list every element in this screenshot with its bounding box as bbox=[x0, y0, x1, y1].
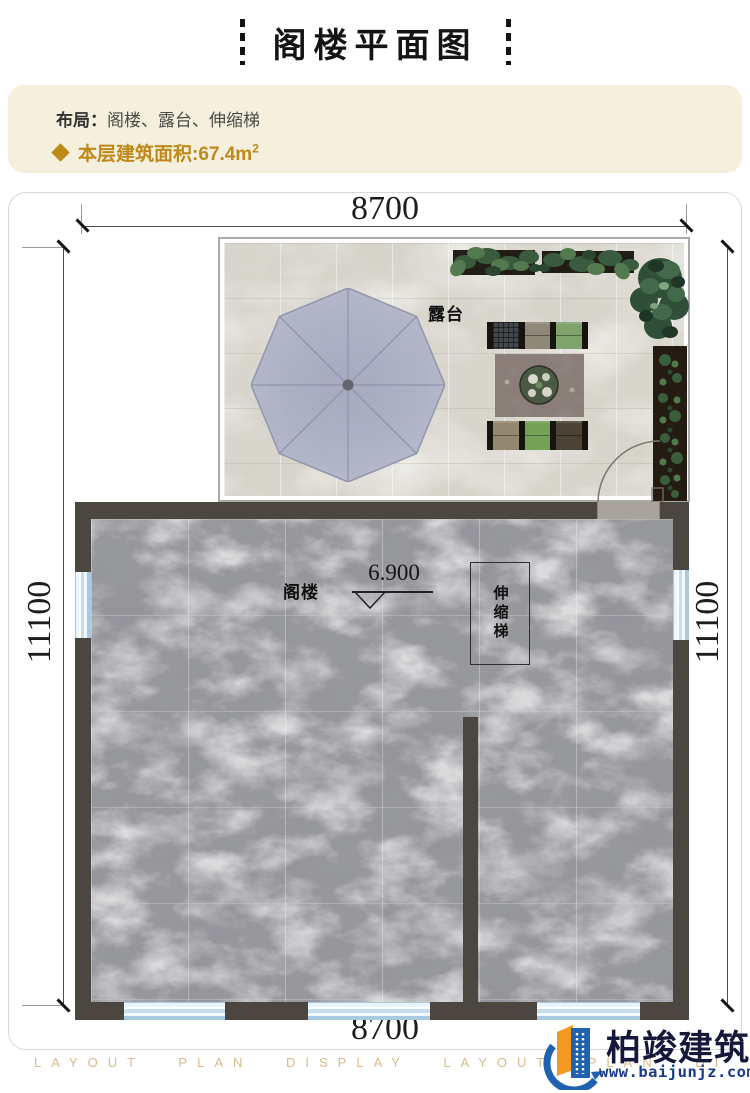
window bbox=[673, 570, 689, 640]
ladder-label: 伸缩梯 bbox=[490, 585, 511, 642]
extension-line bbox=[22, 247, 64, 248]
brand-logo-icon bbox=[543, 1016, 605, 1090]
window bbox=[75, 572, 91, 638]
level-value: 6.900 bbox=[352, 560, 436, 586]
tree-icon bbox=[626, 250, 692, 348]
cushion bbox=[556, 322, 582, 349]
bench-bottom bbox=[487, 421, 588, 450]
umbrella-icon bbox=[251, 288, 445, 482]
layout-line: 布局：阁楼、露台、伸缩梯 bbox=[56, 106, 260, 131]
layout-label: 布局： bbox=[56, 111, 107, 130]
table-rug bbox=[495, 354, 584, 417]
cushion bbox=[556, 421, 582, 450]
dimension-line-top bbox=[82, 226, 686, 227]
cushion bbox=[493, 421, 519, 450]
brand-website: www.baijunjz.com bbox=[599, 1063, 750, 1081]
round-table-icon bbox=[495, 354, 584, 417]
page-title: 阁楼平面图 bbox=[273, 18, 478, 67]
extension-line bbox=[81, 204, 82, 234]
plants-icon bbox=[443, 238, 547, 290]
telescopic-ladder-box: 伸缩梯 bbox=[470, 562, 530, 665]
extension-line bbox=[686, 204, 687, 234]
dimension-top: 8700 bbox=[330, 190, 440, 228]
terrace-label: 露台 bbox=[428, 300, 464, 325]
level-marker-icon bbox=[353, 591, 389, 611]
page-header: 阁楼平面图 bbox=[0, 14, 750, 70]
cushion bbox=[525, 322, 551, 349]
cushion bbox=[493, 322, 519, 349]
attic-label: 阁楼 bbox=[283, 578, 319, 603]
extension-line bbox=[22, 1005, 64, 1006]
info-box: 布局：阁楼、露台、伸缩梯 本层建筑面积:67.4m2 bbox=[8, 85, 742, 173]
area-text: 本层建筑面积:67.4m2 bbox=[78, 139, 259, 166]
door-threshold bbox=[597, 502, 660, 519]
title-dash-right-icon bbox=[506, 19, 511, 65]
dimension-line-left bbox=[63, 247, 64, 1006]
cushion bbox=[525, 421, 551, 450]
dimension-left: 11100 bbox=[21, 562, 59, 682]
layout-value: 阁楼、露台、伸缩梯 bbox=[107, 111, 260, 130]
diamond-bullet-icon bbox=[51, 143, 69, 161]
area-line: 本层建筑面积:67.4m2 bbox=[54, 139, 259, 166]
window bbox=[124, 1002, 225, 1020]
interior-wall bbox=[463, 717, 478, 1002]
bench-top bbox=[487, 322, 588, 349]
title-dash-left-icon bbox=[240, 19, 245, 65]
dimension-right: 11100 bbox=[689, 562, 727, 682]
window bbox=[308, 1002, 430, 1020]
page: 阁楼平面图 布局：阁楼、露台、伸缩梯 本层建筑面积:67.4m2 8700 11… bbox=[0, 0, 750, 1093]
dimension-line-right bbox=[727, 247, 728, 1006]
door-swing-arc bbox=[592, 436, 667, 504]
